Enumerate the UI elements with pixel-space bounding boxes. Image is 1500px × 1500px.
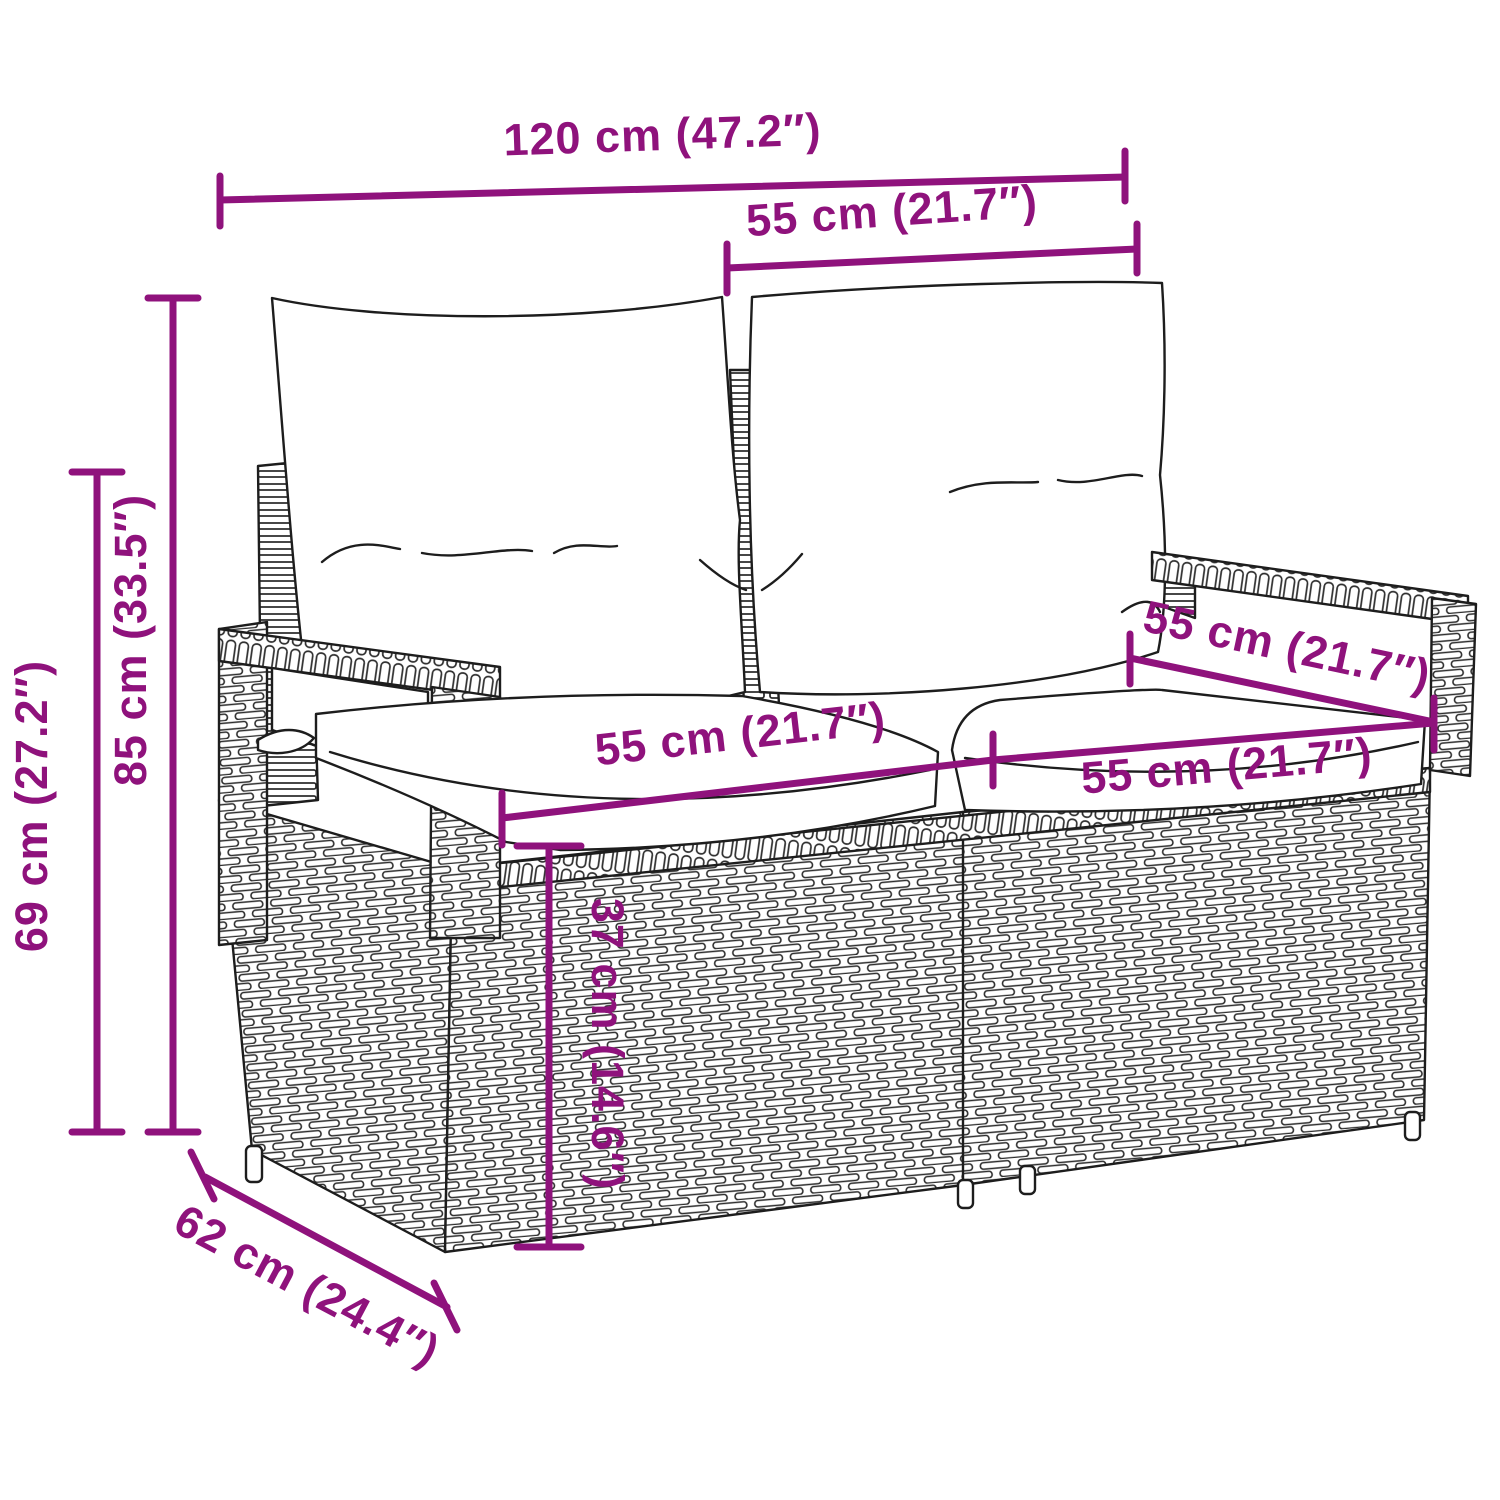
dim-back-cushion-width: 55 cm (21.7″): [727, 175, 1137, 293]
dim-seat-height-label: 37 cm (14.6″): [582, 898, 633, 1190]
leg-mid-right: [1020, 1166, 1035, 1194]
dimension-diagram: 120 cm (47.2″) 55 cm (21.7″) 85 cm (33.5…: [0, 0, 1500, 1500]
dim-overall-height: 85 cm (33.5″): [105, 298, 198, 1132]
leg-mid-left: [958, 1180, 973, 1208]
dim-overall-width-label: 120 cm (47.2″): [503, 103, 823, 165]
leg-front-right: [1405, 1112, 1420, 1140]
dim-armrest-height-label: 69 cm (27.2″): [6, 660, 57, 952]
diagram-canvas: 120 cm (47.2″) 55 cm (21.7″) 85 cm (33.5…: [0, 0, 1500, 1500]
left-arm-column: [219, 622, 267, 945]
leg-front-left: [246, 1146, 262, 1182]
dim-overall-height-label: 85 cm (33.5″): [105, 494, 156, 786]
